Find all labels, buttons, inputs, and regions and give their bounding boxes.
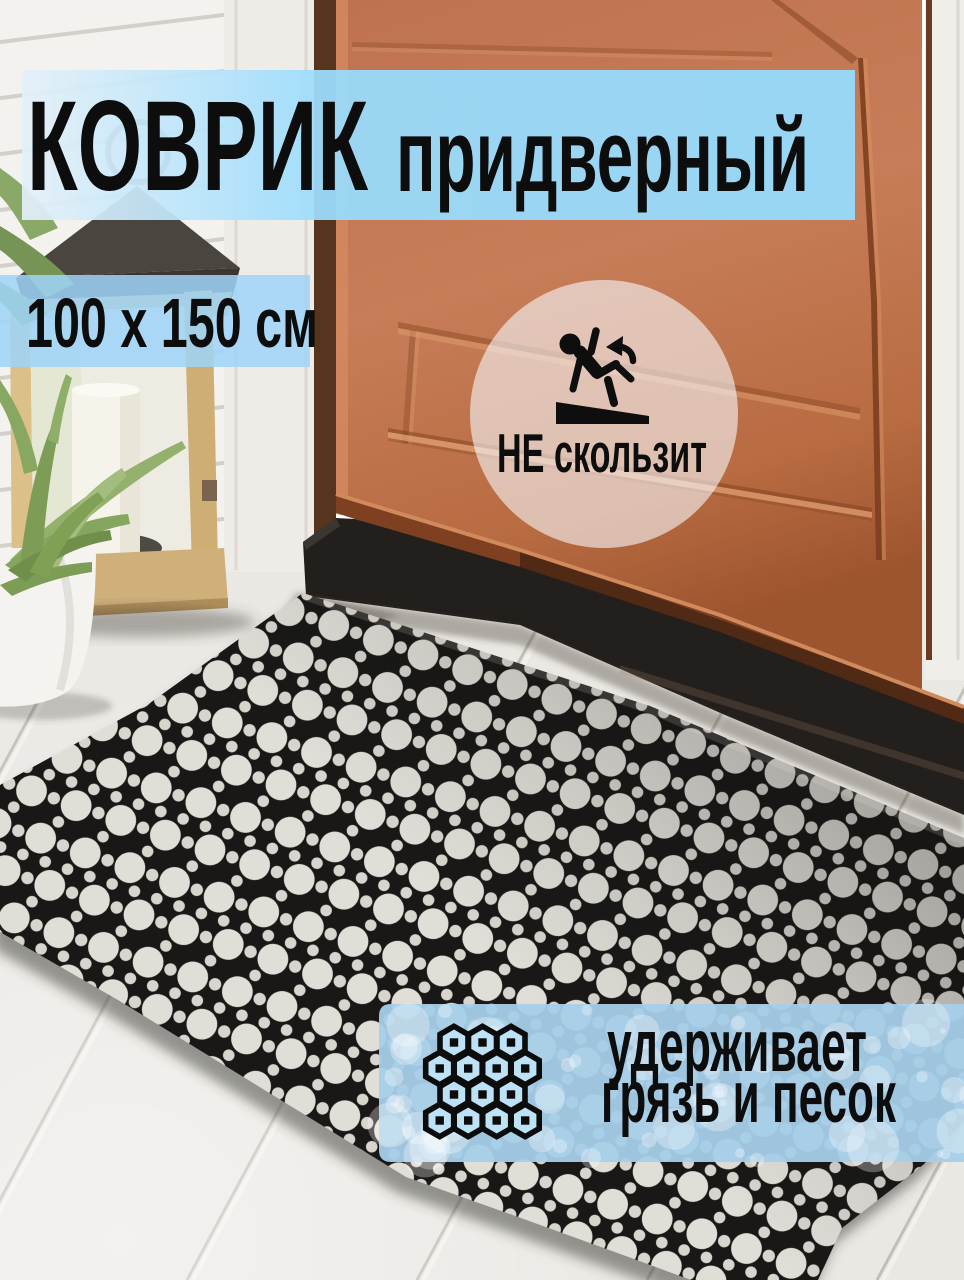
svg-text:100 x 150 см: 100 x 150 см [26,284,318,362]
svg-text:придверный: придверный [396,98,809,213]
svg-text:грязь и песок: грязь и песок [601,1057,896,1138]
svg-text:НЕ скользит: НЕ скользит [497,422,707,484]
svg-text:КОВРИК: КОВРИК [27,75,369,218]
